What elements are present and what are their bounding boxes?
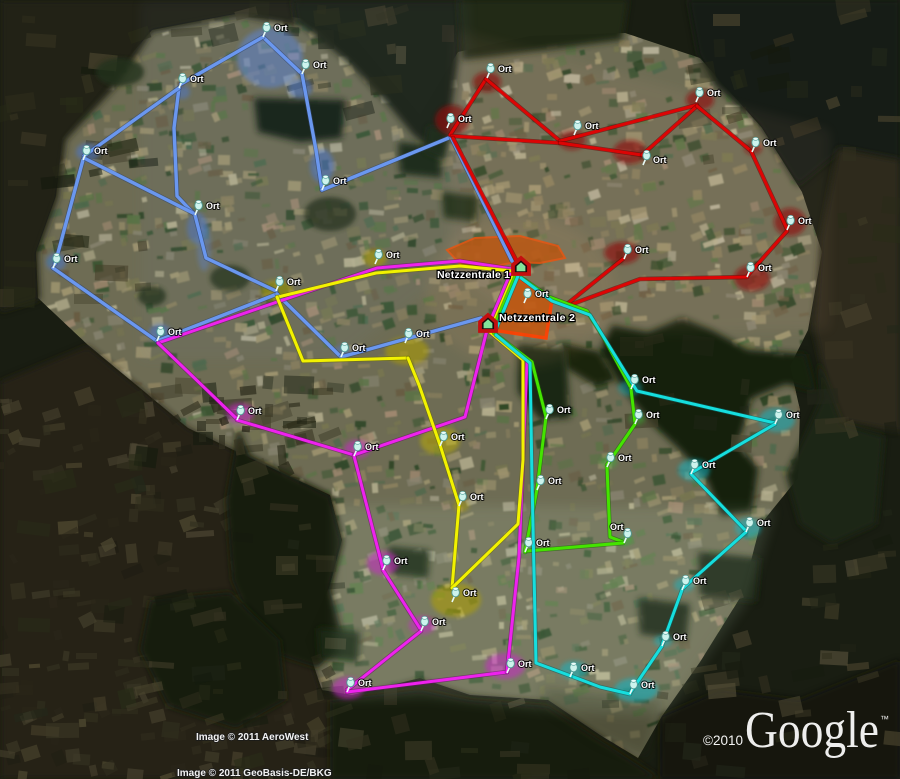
svg-text:Ort: Ort xyxy=(757,518,771,528)
svg-text:Ort: Ort xyxy=(451,432,465,442)
svg-text:Ort: Ort xyxy=(673,632,687,642)
svg-text:Ort: Ort xyxy=(394,556,408,566)
svg-text:Ort: Ort xyxy=(190,74,204,84)
svg-text:Ort: Ort xyxy=(333,176,347,186)
svg-text:Ort: Ort xyxy=(581,663,595,673)
svg-text:Netzzentrale 2: Netzzentrale 2 xyxy=(499,312,575,324)
svg-text:Ort: Ort xyxy=(64,254,78,264)
svg-text:Ort: Ort xyxy=(763,138,777,148)
svg-text:Ort: Ort xyxy=(313,60,327,70)
svg-text:Ort: Ort xyxy=(646,410,660,420)
svg-text:Ort: Ort xyxy=(386,250,400,260)
svg-text:Netzzentrale 1: Netzzentrale 1 xyxy=(437,269,510,281)
svg-text:Ort: Ort xyxy=(758,263,772,273)
svg-text:Ort: Ort xyxy=(206,201,220,211)
svg-text:Ort: Ort xyxy=(548,476,562,486)
svg-text:Ort: Ort xyxy=(610,522,624,532)
svg-text:Ort: Ort xyxy=(274,23,288,33)
svg-text:Ort: Ort xyxy=(653,155,667,165)
svg-text:Ort: Ort xyxy=(702,460,716,470)
svg-text:Ort: Ort xyxy=(416,329,430,339)
svg-text:Ort: Ort xyxy=(498,64,512,74)
svg-text:Ort: Ort xyxy=(642,375,656,385)
svg-text:Ort: Ort xyxy=(557,405,571,415)
svg-text:Ort: Ort xyxy=(248,406,262,416)
svg-text:Ort: Ort xyxy=(352,343,366,353)
svg-text:Ort: Ort xyxy=(287,277,301,287)
svg-text:Ort: Ort xyxy=(536,538,550,548)
svg-text:Ort: Ort xyxy=(94,146,108,156)
svg-text:Google: Google xyxy=(745,702,879,759)
svg-text:Ort: Ort xyxy=(535,289,549,299)
svg-text:Ort: Ort xyxy=(798,216,812,226)
svg-text:Ort: Ort xyxy=(635,245,649,255)
svg-text:Ort: Ort xyxy=(168,327,182,337)
svg-text:Ort: Ort xyxy=(786,410,800,420)
svg-text:Image © 2011 AeroWest: Image © 2011 AeroWest xyxy=(196,732,309,743)
svg-text:Image © 2011 GeoBasis-DE/BKG: Image © 2011 GeoBasis-DE/BKG xyxy=(177,768,332,779)
svg-text:Ort: Ort xyxy=(358,678,372,688)
svg-text:Ort: Ort xyxy=(618,453,632,463)
svg-text:Ort: Ort xyxy=(470,492,484,502)
svg-text:Ort: Ort xyxy=(707,88,721,98)
svg-text:Ort: Ort xyxy=(463,588,477,598)
svg-text:Ort: Ort xyxy=(432,617,446,627)
svg-text:Ort: Ort xyxy=(585,121,599,131)
svg-text:Ort: Ort xyxy=(365,442,379,452)
svg-text:™: ™ xyxy=(880,714,889,724)
svg-text:©2010: ©2010 xyxy=(703,733,743,748)
svg-text:Ort: Ort xyxy=(518,659,532,669)
svg-text:Ort: Ort xyxy=(641,680,655,690)
svg-text:Ort: Ort xyxy=(458,114,472,124)
svg-text:Ort: Ort xyxy=(693,576,707,586)
